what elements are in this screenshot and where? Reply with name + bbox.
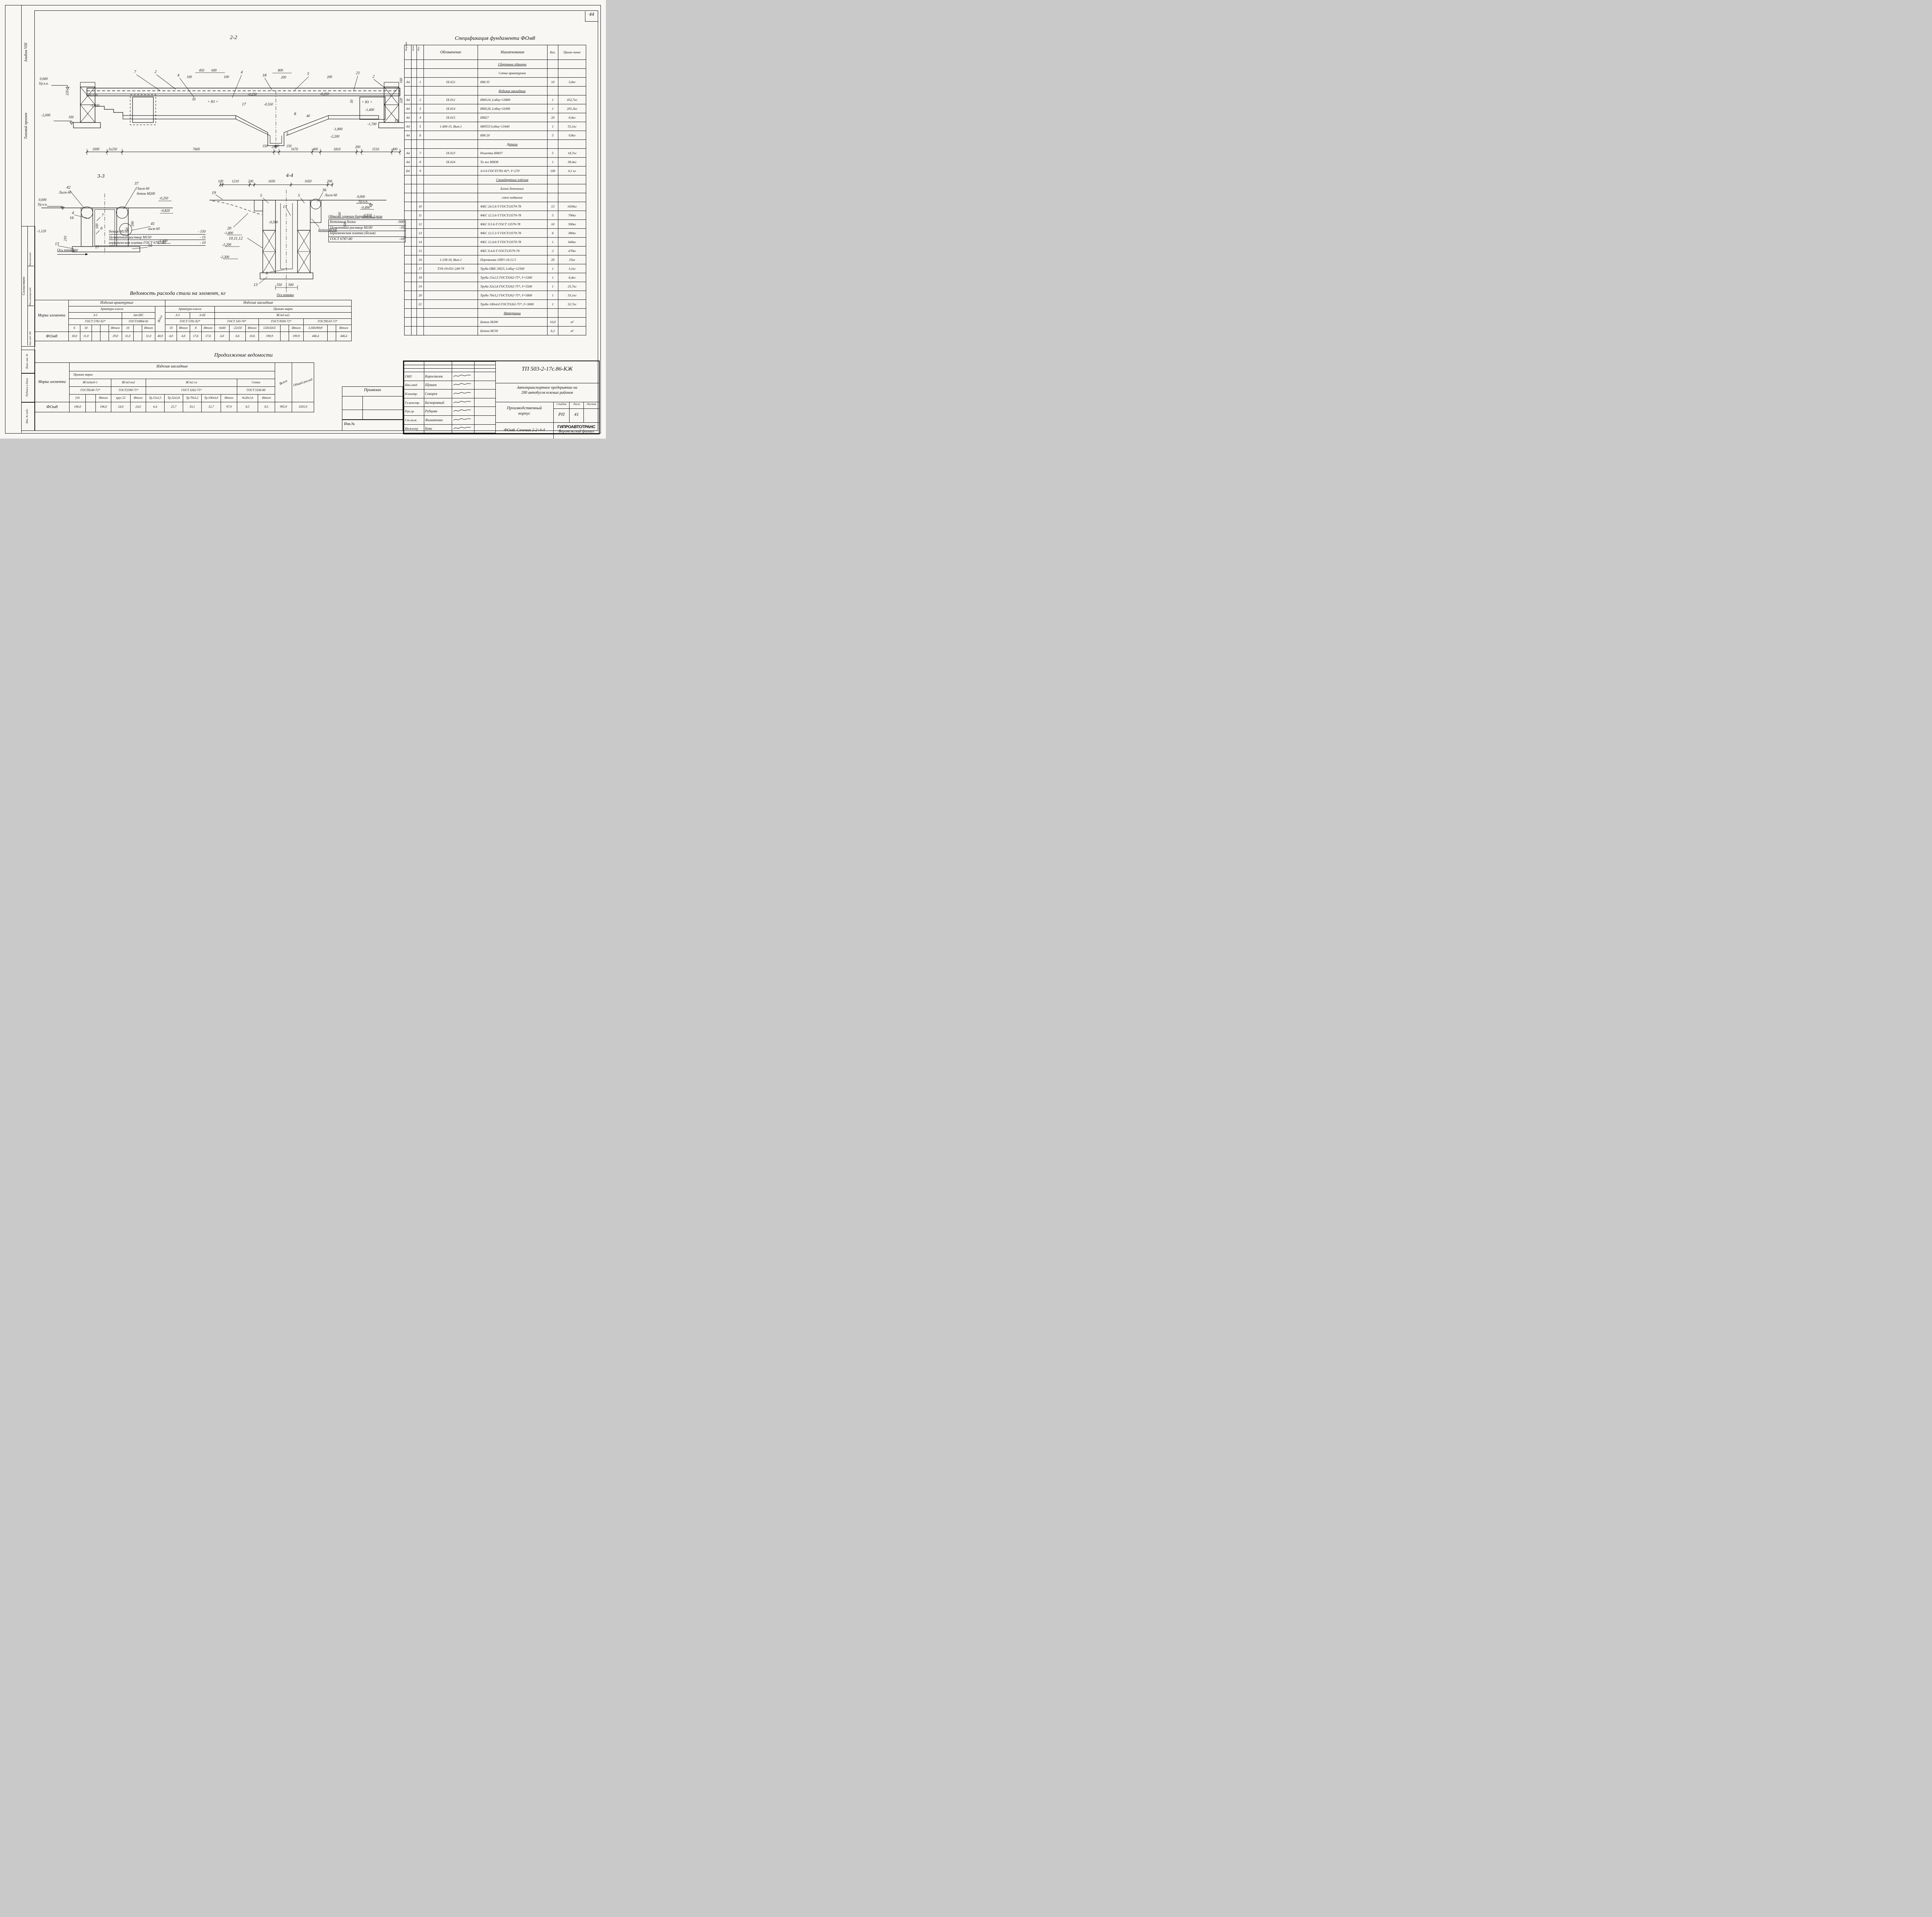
value: 4,0 — [215, 332, 230, 341]
privyazan-cell — [342, 410, 363, 419]
col-header-kol: Кол. — [548, 45, 558, 60]
cell-kol — [548, 69, 558, 78]
spec-header-row: Формат Зона Поз. Обозначение Наименовани… — [405, 45, 586, 60]
cell-obozn — [424, 220, 478, 229]
titleblock-grid: ГИП Коростелев Нач.отд. Шуваев — [404, 361, 496, 433]
cell-naim: ИМ27 — [478, 113, 548, 122]
cell-prim — [558, 87, 586, 95]
callout-number: 4 — [177, 73, 180, 78]
cell-poz — [417, 60, 424, 69]
cell-naim: Сборочные единицы — [478, 60, 548, 69]
col-header-poz: Поз. — [417, 45, 424, 60]
cell-zona — [412, 247, 417, 255]
spec-row: 11 ФБС 12.5.6-Т ГОСТ13579-78 5 790кг — [405, 211, 586, 220]
cell-poz: 4 — [417, 113, 424, 122]
agreed-row: Нач.электроотд. — [28, 266, 34, 306]
cell-zona — [412, 175, 417, 184]
cell-format: А4 — [405, 95, 412, 104]
cell-obozn: IX.015 — [424, 113, 478, 122]
cell-kol — [548, 175, 558, 184]
value: 190,9 — [259, 332, 281, 341]
tb-empty — [424, 369, 452, 372]
cell-obozn — [424, 193, 478, 202]
cell-naim: Сетка арматурная — [478, 69, 548, 78]
elevation-label: -0,170 — [88, 93, 98, 97]
axis-arrow — [57, 254, 87, 255]
elevation-label: -2,300 — [220, 255, 230, 259]
organization-name: ГИПРОАВТОТРАНС — [554, 423, 599, 429]
cell-obozn: 1.138-10, Вып.1 — [424, 255, 478, 264]
cell-format — [405, 309, 412, 318]
signature-squiggle — [453, 417, 471, 422]
note-text: керамическая плитка (белая) — [330, 232, 376, 236]
staff-role: Гл.констр. — [404, 398, 424, 407]
titleblock-staff: ГИП Коростелев Нач.отд. Шуваев — [404, 372, 496, 433]
cell-poz: 7 — [417, 149, 424, 158]
elevation-label: 0,000 — [39, 198, 47, 202]
dim-label: 3х250 — [108, 147, 117, 151]
size: Итого — [336, 325, 352, 332]
cell-format — [405, 282, 412, 291]
dim-label: 1650 — [268, 179, 276, 183]
staff-name: Шуваев — [424, 381, 452, 390]
elevation-label: -0,550 — [264, 102, 273, 106]
size: 8 — [190, 325, 202, 332]
cell-poz: 11 — [417, 211, 424, 220]
cell-kol: 1 — [548, 300, 558, 309]
size: Тр.15х2,5 — [146, 395, 165, 402]
armature-class-header: Арматура класса — [69, 306, 155, 313]
cell-naim: ФБС 12.5.3-Т ГОСТ13579-78 — [478, 229, 548, 238]
steel-vst3kp2: ВСт3 кп2 — [215, 313, 352, 319]
cell-kol — [548, 184, 558, 193]
callout-number: 17 — [242, 102, 246, 107]
cell-obozn: IX.022 — [424, 78, 478, 87]
cell-obozn — [424, 60, 478, 69]
staff-role: Инженер — [404, 424, 424, 433]
callout-note: Лист 60 — [324, 193, 337, 197]
cell-naim: Решетки ИМ37 — [478, 149, 548, 158]
staff-name: Бескоровный — [424, 398, 452, 407]
prod-title: Продолжение ведомости — [166, 352, 321, 359]
cell-prim: 6,4кг — [558, 273, 586, 282]
vsego-header: Всего — [275, 363, 292, 402]
group-armature: Изделия арматурные — [69, 300, 165, 306]
margin-album-label: Альбом VIII — [24, 43, 28, 62]
size: Итого — [202, 325, 215, 332]
value — [86, 402, 96, 412]
cell-kol — [548, 60, 558, 69]
cell-obozn: IX.023 — [424, 149, 478, 158]
cell-prim — [558, 140, 586, 149]
cell-kol: 2 — [548, 247, 558, 255]
spec-row: 16 1.138-10, Вып.1 Перемычка 1ПР1-10.12.… — [405, 255, 586, 264]
value: 29,0 — [109, 332, 122, 341]
staff-role: Ст.инж. — [404, 415, 424, 424]
section-title: 2-2 — [230, 35, 237, 41]
cell-kol: 1 — [548, 95, 558, 104]
dim-label: 200 — [327, 179, 332, 183]
size — [100, 325, 109, 332]
spec-row: А4 8 IX.024 То же ИМ38 1 38,4кг — [405, 158, 586, 167]
dim-label: 800 — [278, 68, 283, 72]
cell-naim: ФБС 9.4.6-Т ГОСТ13579-78 — [478, 247, 548, 255]
elevation-label: -2,200 — [222, 243, 231, 247]
value: 4,0 — [165, 332, 177, 341]
section-title: 3-3 — [97, 173, 105, 179]
cell-naim: То же ИМ38 — [478, 158, 548, 167]
vedomost-title: Ведомость расхода стали на элемент, кг — [70, 291, 286, 297]
spec-row: стен подвалов — [405, 193, 586, 202]
tb-empty — [424, 365, 452, 369]
value: 17,6 — [190, 332, 202, 341]
tb-empty — [452, 365, 474, 369]
staff-row: Н.контр. Сокорев — [404, 390, 496, 398]
cell-prim: 38,4кг — [558, 158, 586, 167]
privyazan-box: Привязан — [342, 386, 403, 420]
cell-kol — [548, 87, 558, 95]
size: Итого — [131, 395, 146, 402]
callout-number: 17 — [95, 245, 99, 250]
staff-date — [474, 372, 496, 381]
spec-title: Спецификация фундамента ФОм8 — [404, 36, 586, 42]
spec-row: 15 ФБС 9.4.6-Т ГОСТ13579-78 2 470кг — [405, 247, 586, 255]
callout-number: 36 — [322, 188, 327, 192]
value: 11,0 — [80, 332, 92, 341]
cell-obozn — [424, 247, 478, 255]
cell-naim: Труба 100х4,0 ГОСТ3262-75*, ℓ=3000 — [478, 300, 548, 309]
cell-kol — [548, 309, 558, 318]
sheets-value — [584, 409, 599, 422]
cell-prim: 201,3кг — [558, 104, 586, 113]
cell-prim: 452,7кг — [558, 95, 586, 104]
dim-label: 7600 — [193, 147, 200, 151]
embed-mark: + Н1 + — [207, 100, 218, 104]
staff-date — [474, 407, 496, 416]
elevation-label: -0,820 — [161, 209, 170, 213]
note-text: ГОСТ 6787-80 — [330, 238, 352, 242]
cell-format — [405, 69, 412, 78]
size: 6 — [69, 325, 80, 332]
tb-empty — [424, 362, 452, 365]
spec-row: А4 1 IX.022 ИМ 35 10 3,0кг — [405, 78, 586, 87]
size — [86, 395, 96, 402]
cell-kol: 1 — [548, 158, 558, 167]
spec-row: 18 Труба 15х2,5 ГОСТ3262-75*, ℓ=5300 1 6… — [405, 273, 586, 282]
cell-kol: 5 — [548, 149, 558, 158]
cell-format — [405, 327, 412, 335]
elevation-label: Ур.ч.п. — [37, 202, 48, 206]
value: 8,5 — [237, 402, 258, 412]
cell-naim: Труба 32х2,8 ГОСТ3262-75*, ℓ=5500 — [478, 282, 548, 291]
staff-date — [474, 381, 496, 390]
cell-format — [405, 238, 412, 247]
size: круг 22 — [111, 395, 131, 402]
cell-prim: 590кг — [558, 220, 586, 229]
gost: ГОСТ8240-72* — [70, 387, 111, 395]
cell-kol: 6,2 — [548, 327, 558, 335]
cell-obozn — [424, 318, 478, 327]
col-header-format: Формат — [405, 45, 412, 60]
staff-date — [474, 390, 496, 398]
gost: ГОСТ 5781-82* — [165, 319, 215, 325]
elevation-label: -1,800 — [333, 127, 343, 131]
value: 6,4 — [146, 402, 165, 412]
page-number: 44 — [585, 11, 598, 17]
dim-label: 210 — [63, 236, 67, 241]
callout-number: 8 — [294, 112, 296, 116]
cell-zona — [412, 264, 417, 273]
tb-empty — [474, 365, 496, 369]
sheet-value: 41 — [570, 409, 584, 422]
drawing-sheet: 44 Альбом VIII Типовой проект Согласован… — [0, 0, 606, 439]
cell-naim: Стандартные изделия — [478, 175, 548, 184]
class-ai: А-I — [69, 313, 122, 319]
cell-format: А4 — [405, 104, 412, 113]
value: 25,7 — [165, 402, 183, 412]
cell-kol: 1 — [548, 122, 558, 131]
section-3-3-notes: бетон М150- 150 Цементный раствор М150- … — [109, 230, 206, 246]
cell-format: А4 — [405, 78, 412, 87]
gost: ГОСТ8510-72* — [304, 319, 352, 325]
dim-label: 220 — [65, 90, 69, 95]
value: 33,1 — [183, 402, 202, 412]
cell-kol — [548, 140, 558, 149]
size: №20х1,6 — [237, 395, 258, 402]
size: -22х50 — [230, 325, 246, 332]
staff-role: ГИП — [404, 372, 424, 381]
dim-label: 1510 — [372, 147, 379, 151]
section-4-4-notes: Обмазка горячим битумом за 2 раза Бетонн… — [328, 215, 406, 242]
cell-zona — [412, 193, 417, 202]
elevation-label: -1,120 — [37, 229, 46, 233]
cell-format — [405, 193, 412, 202]
signature-squiggle — [453, 408, 471, 413]
value: 24,0 — [131, 402, 146, 412]
spec-row: 21 Труба 100х4,0 ГОСТ3262-75*, ℓ=3000 1 … — [405, 300, 586, 309]
dim-label: 600 — [211, 68, 217, 72]
value: 18,0 — [69, 332, 80, 341]
cell-prim — [558, 184, 586, 193]
value: 446,4 — [304, 332, 328, 341]
cell-obozn — [424, 273, 478, 282]
steel-grade: ВСт3 кп2 — [111, 379, 146, 387]
cell-poz: 9 — [417, 167, 424, 175]
cell-zona — [412, 60, 417, 69]
note-text: Цементный раствор М100 — [330, 226, 372, 230]
steel-grade: Сетки — [237, 379, 275, 387]
size: Итого — [221, 395, 237, 402]
value: 24,0 — [111, 402, 131, 412]
cell-kol: 1 — [548, 273, 558, 282]
cell-format — [405, 264, 412, 273]
staff-role: Рук.гр. — [404, 407, 424, 416]
value: 4,0 — [177, 332, 190, 341]
cell-poz — [417, 140, 424, 149]
size: Итого — [258, 395, 275, 402]
cell-kol: 1 — [548, 264, 558, 273]
size: L160х90х9 — [304, 325, 328, 332]
callout-number: 5 — [286, 132, 288, 136]
cell-poz: 12 — [417, 220, 424, 229]
cell-naim: стен подвалов — [478, 193, 548, 202]
spec-row: Детали — [405, 140, 586, 149]
cell-naim: ФБС 12.5.6-Т ГОСТ13579-78 — [478, 211, 548, 220]
gost: ГОСТ10884-81 — [122, 319, 155, 325]
cell-prim: 18,7кг — [558, 149, 586, 158]
cell-zona — [412, 238, 417, 247]
cell-naim: Труба 15х2,5 ГОСТ3262-75*, ℓ=5300 — [478, 273, 548, 282]
armature-class-header: Арматура класса — [165, 306, 215, 313]
cell-naim: ФБС 24.5.6-Т ГОСТ13579-78 — [478, 202, 548, 211]
cell-kol: 5 — [548, 131, 558, 140]
privyazan-cell — [363, 396, 403, 410]
dim-label: 400 — [392, 147, 398, 151]
signature-squiggle — [453, 425, 471, 430]
cell-obozn — [424, 140, 478, 149]
callout-number: 18 — [262, 73, 267, 78]
cell-zona — [412, 318, 417, 327]
cell-zona — [412, 202, 417, 211]
gost: ГОСТ 5781-82* — [69, 319, 122, 325]
spec-row: А4 4 IX.015 ИМ27 20 0,4кг — [405, 113, 586, 122]
callout-number: 41 — [151, 222, 155, 226]
dim-label: 160 — [399, 78, 403, 83]
cell-naim: ИМ126, Lобщ=11000 — [478, 104, 548, 113]
cell-zona — [412, 300, 417, 309]
cell-poz: 8 — [417, 158, 424, 167]
cell-zona — [412, 273, 417, 282]
cell-zona — [412, 69, 417, 78]
value: 11,0 — [122, 332, 134, 341]
cell-prim: 9,8кг — [558, 131, 586, 140]
cell-kol: 1 — [548, 282, 558, 291]
value: 196,0 — [70, 402, 86, 412]
size: Тр.100х4,0 — [202, 395, 221, 402]
object-name: Производственный корпус — [495, 402, 554, 422]
value — [281, 332, 289, 341]
size — [281, 325, 289, 332]
elevation-label: Ур.ч.п. — [358, 199, 368, 203]
cell-poz: 18 — [417, 273, 424, 282]
cell-naim: ИМ 35 — [478, 78, 548, 87]
callout-number: 10,11,12 — [229, 236, 243, 241]
cell-format — [405, 300, 412, 309]
gost: ГОСТ 8509-72* — [259, 319, 304, 325]
gost: ГОСТ 103-76* — [215, 319, 259, 325]
staff-name: Бова — [424, 424, 452, 433]
cell-poz: 1 — [417, 78, 424, 87]
spec-row: 12 ФБС 9.5.6-Т ГОСТ 13579-78 10 590кг — [405, 220, 586, 229]
spec-row: А4 5 1.400-15, Вып.1 МН553 Lобщ=13440 1 … — [405, 122, 586, 131]
stage-header: Стадия — [554, 402, 570, 408]
spec-row: А4 6 ИМ 20 5 9,8кг — [405, 131, 586, 140]
mark-header: Марка элемента — [35, 300, 69, 332]
dim-label: 1810 — [333, 147, 341, 151]
callout-number: 17 — [283, 205, 287, 209]
cell-poz: 20 — [417, 291, 424, 300]
cell-poz — [417, 309, 424, 318]
margin-project-type-label: Типовой проект — [24, 113, 28, 139]
cell-prim: 25,7кг — [558, 282, 586, 291]
tb-empty — [452, 362, 474, 365]
tb-empty — [404, 362, 424, 365]
elevation-label: -0,250 — [320, 92, 329, 96]
value: 97,9 — [221, 402, 237, 412]
tb-empty — [404, 369, 424, 372]
privyazan-cell — [363, 410, 403, 419]
signature-squiggle — [453, 382, 471, 386]
cell-poz: 10 — [417, 202, 424, 211]
note-text: бетон М150 — [109, 230, 128, 234]
size: Тр.32х2,8 — [165, 395, 183, 402]
note-value: -10 — [399, 238, 404, 242]
staff-name: Рубцова — [424, 407, 452, 416]
dim-label: 200 — [248, 179, 253, 183]
element-mark: ФОм8 — [35, 332, 69, 341]
cell-obozn — [424, 131, 478, 140]
cell-zona — [412, 291, 417, 300]
cell-prim — [558, 193, 586, 202]
cell-prim: 790кг — [558, 211, 586, 220]
cell-format — [405, 220, 412, 229]
cell-kol: 1 — [548, 238, 558, 247]
group-embedded: Изделия закладные — [165, 300, 352, 306]
size: Тр.70х3,2 — [183, 395, 202, 402]
spec-row: 13 ФБС 12.5.3-Т ГОСТ13579-78 6 380кг — [405, 229, 586, 238]
gost: ГОСТ2590-71* — [111, 387, 146, 395]
cell-poz: 13 — [417, 229, 424, 238]
cell-zona — [412, 95, 417, 104]
callout-number: 5 — [298, 194, 300, 198]
spec-row: А4 3 IX.014 ИМ126, Lобщ=11000 1 201,3кг — [405, 104, 586, 113]
col-header-zona: Зона — [412, 45, 417, 60]
cell-obozn — [424, 229, 478, 238]
value: 446,4 — [336, 332, 352, 341]
spec-table: Формат Зона Поз. Обозначение Наименовани… — [404, 45, 586, 335]
staff-signature — [452, 372, 474, 381]
spec-row: Бетон М200 10,0 м³ — [405, 318, 586, 327]
group-embedded: Изделия закладные — [70, 363, 275, 371]
spec-rows: Сборочные единицы Сетка арматурная А4 — [405, 60, 586, 335]
staff-row: Нач.отд. Шуваев — [404, 381, 496, 390]
cell-prim: 380кг — [558, 229, 586, 238]
value: 11,0 — [142, 332, 155, 341]
staff-signature — [452, 381, 474, 390]
cell-poz: 5 — [417, 122, 424, 131]
cell-format — [405, 291, 412, 300]
cell-poz: 6 — [417, 131, 424, 140]
cell-prim: 640кг — [558, 238, 586, 247]
size: 10 — [80, 325, 92, 332]
cell-obozn: 1.400-15, Вып.1 — [424, 122, 478, 131]
dim-label: 1650 — [304, 179, 312, 183]
cell-format — [405, 202, 412, 211]
cell-zona — [412, 255, 417, 264]
dim-label: 40 — [306, 114, 310, 118]
cell-obozn: IX.014 — [424, 104, 478, 113]
cell-prim: 25кг — [558, 255, 586, 264]
callout-note: бетон М200 — [137, 192, 155, 196]
size: 10 — [122, 325, 134, 332]
dim-label: 1000 — [92, 147, 100, 151]
callout-number: 19 — [212, 191, 216, 195]
cell-prim: 470кг — [558, 247, 586, 255]
cell-obozn — [424, 291, 478, 300]
spec-row: Сборочные единицы — [405, 60, 586, 69]
cell-obozn: ТУ6-19-051-249-79 — [424, 264, 478, 273]
section-2-2-drawing: 2-2 — [37, 33, 404, 160]
